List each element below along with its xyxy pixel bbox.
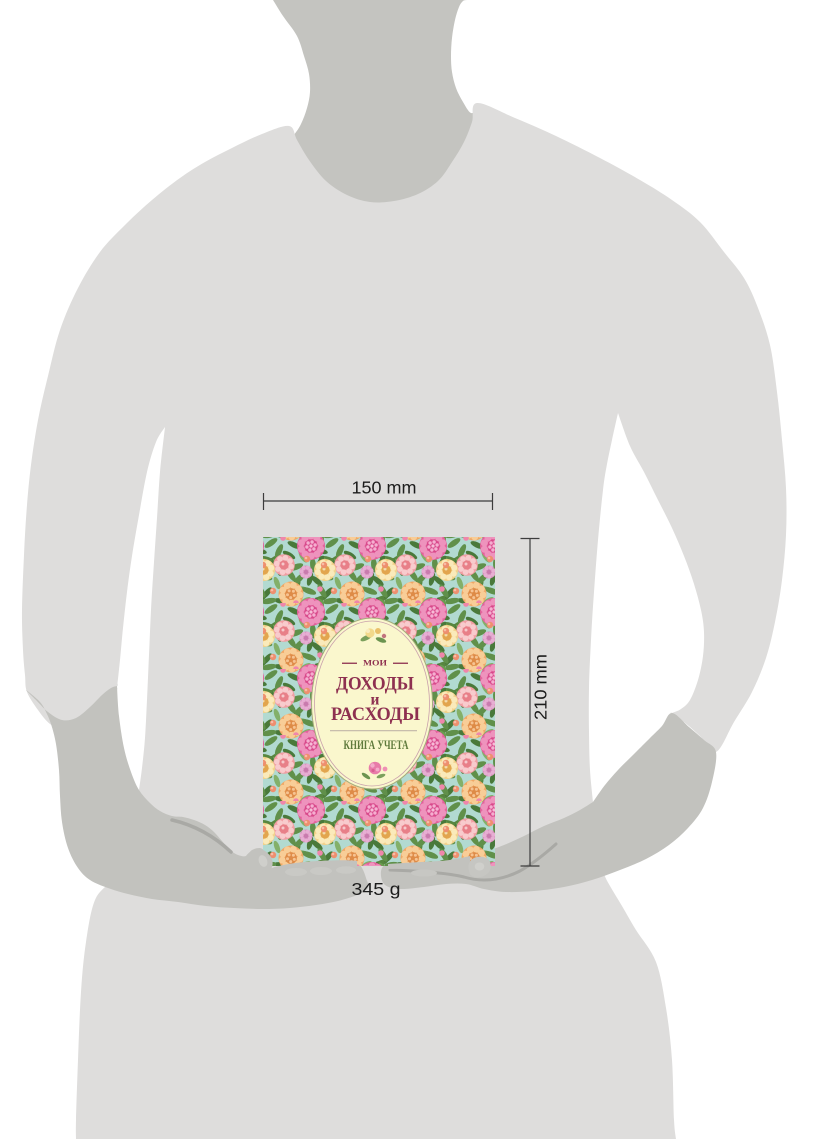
svg-text:210 mm: 210 mm	[531, 654, 551, 720]
svg-text:МОИ: МОИ	[363, 659, 388, 668]
svg-text:150 mm: 150 mm	[352, 478, 417, 498]
svg-text:345 g: 345 g	[352, 879, 401, 899]
svg-text:РАСХОДЫ: РАСХОДЫ	[331, 705, 420, 725]
svg-text:КНИГА УЧЕТА: КНИГА УЧЕТА	[344, 737, 409, 752]
